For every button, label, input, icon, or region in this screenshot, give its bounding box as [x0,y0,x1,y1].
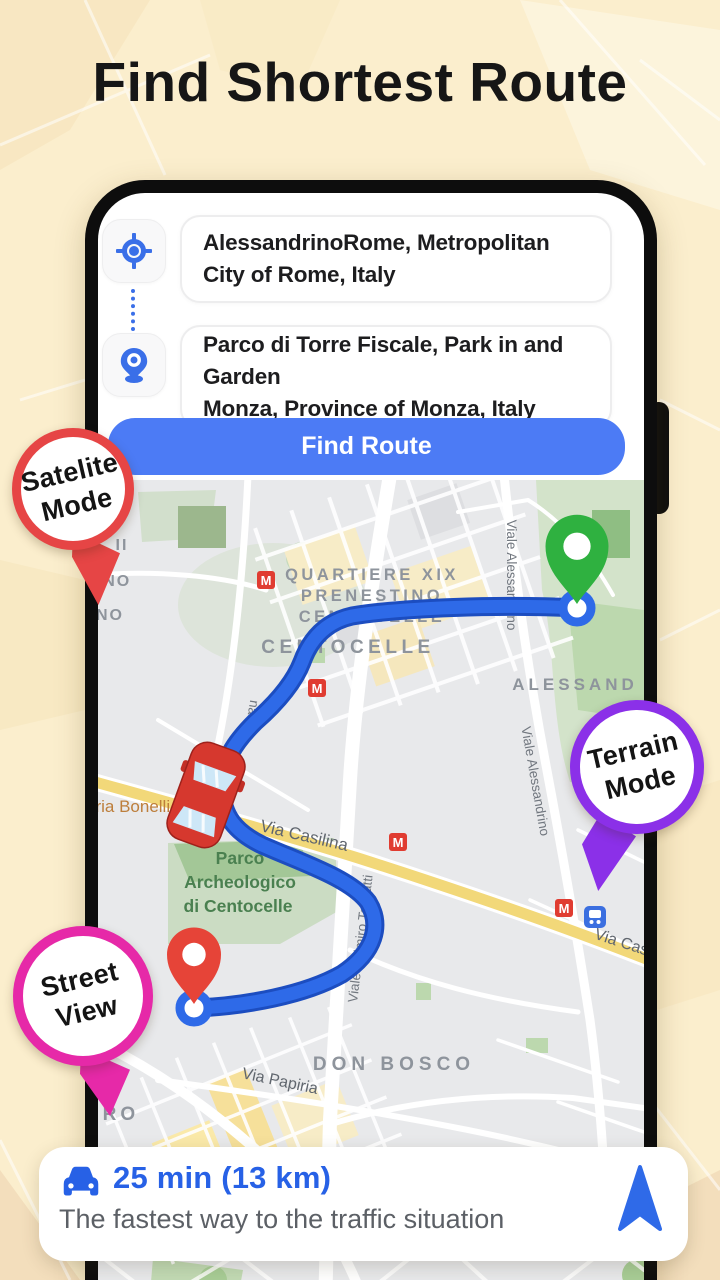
phone-frame: AlessandrinoRome, Metropolitan City of R… [85,180,657,1280]
train-station-icon [584,906,606,928]
navigation-arrow-button[interactable] [614,1161,666,1241]
metro-m-icon: M [312,681,323,696]
target-icon [116,233,152,269]
destination-icon-box [102,333,166,397]
metro-m-icon: M [261,573,272,588]
terrain-mode-callout: Terrain Mode [570,700,704,834]
route-subtitle: The fastest way to the traffic situation [59,1204,504,1235]
origin-icon-box [102,219,166,283]
label-quartiere-1: QUARTIERE XIX [285,566,459,584]
page-title: Find Shortest Route [0,50,720,114]
label-partial-ii: II [116,537,129,554]
label-don-bosco: DON BOSCO [313,1054,475,1075]
find-route-button[interactable]: Find Route [108,418,625,475]
route-duration: 25 min (13 km) [113,1160,331,1196]
car-icon [58,1162,104,1204]
label-eria-bonelli: eria Bonelli [98,797,170,816]
metro-m-icon: M [393,835,404,850]
destination-text-line1: Parco di Torre Fiscale, Park in and Gard… [203,329,610,393]
label-partial-no: NO [98,607,124,624]
route-summary-card: 25 min (13 km) The fastest way to the tr… [39,1147,688,1261]
origin-text-line2: City of Rome, Italy [203,259,610,291]
label-parco-2: Archeologico [184,872,296,892]
destination-field[interactable]: Parco di Torre Fiscale, Park in and Gard… [180,325,612,429]
satellite-mode-callout: Satelite Mode [12,428,134,550]
phone-screen: AlessandrinoRome, Metropolitan City of R… [98,193,644,1280]
label-centocelle: CENTOCELLE [261,637,434,658]
pin-icon [116,346,152,384]
label-parco-3: di Centocelle [184,896,293,916]
label-alessandrino-district: ALESSAND [512,675,638,694]
origin-field[interactable]: AlessandrinoRome, Metropolitan City of R… [180,215,612,303]
metro-m-icon: M [559,901,570,916]
street-view-callout: Street View [13,926,153,1066]
origin-text-line1: AlessandrinoRome, Metropolitan [203,227,610,259]
route-dotted-connector [131,289,135,331]
